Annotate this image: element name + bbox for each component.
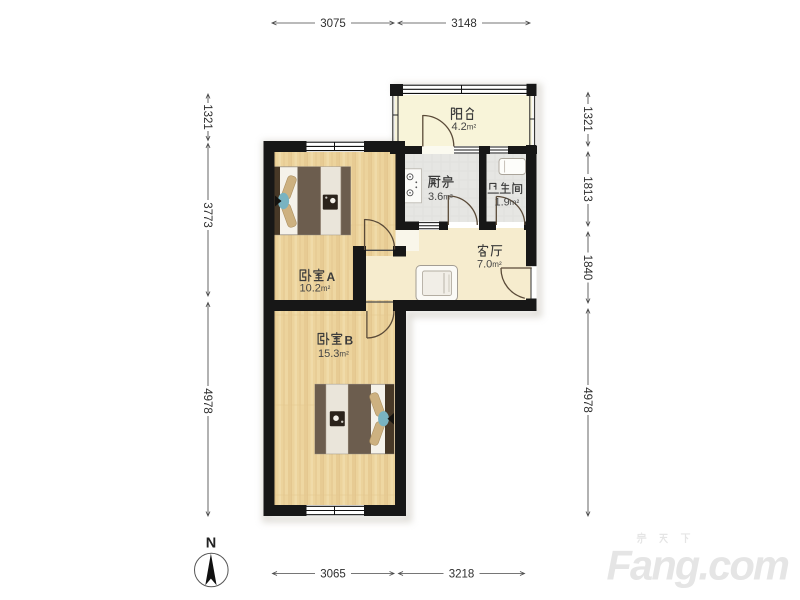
svg-text:3218: 3218: [449, 569, 475, 581]
svg-text:1321: 1321: [201, 104, 213, 130]
svg-text:15.3m²: 15.3m²: [318, 348, 349, 360]
svg-text:10.2m²: 10.2m²: [300, 283, 331, 295]
svg-text:4.2m²: 4.2m²: [452, 121, 477, 133]
svg-text:1.9m²: 1.9m²: [495, 197, 520, 209]
svg-text:3.6m²: 3.6m²: [428, 191, 453, 203]
svg-text:7.0m²: 7.0m²: [477, 259, 502, 271]
svg-text:N: N: [206, 536, 216, 552]
svg-text:B: B: [345, 334, 354, 348]
svg-text:3148: 3148: [451, 18, 477, 30]
svg-text:A: A: [327, 270, 336, 284]
svg-text:4978: 4978: [581, 387, 593, 413]
svg-text:4978: 4978: [201, 388, 213, 414]
svg-text:1840: 1840: [581, 255, 593, 281]
svg-text:1321: 1321: [581, 106, 593, 132]
svg-text:Fang.com: Fang.com: [607, 542, 789, 589]
svg-text:3773: 3773: [201, 202, 213, 228]
svg-text:1813: 1813: [581, 176, 593, 202]
svg-text:3065: 3065: [320, 569, 346, 581]
svg-text:3075: 3075: [320, 18, 346, 30]
